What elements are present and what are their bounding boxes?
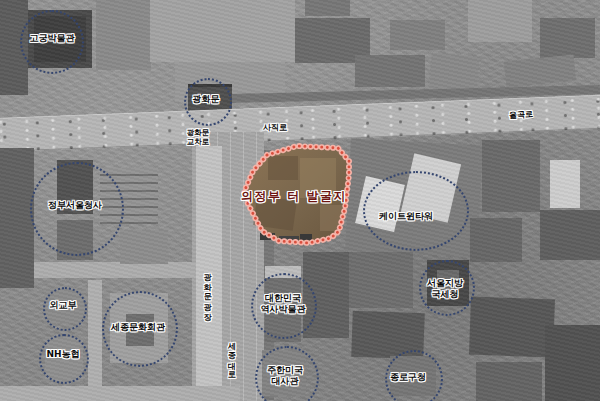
place-label-gwanghwamun: 광화문 <box>193 94 220 105</box>
street-label-line: 광화문 <box>187 128 210 137</box>
street-label-line: 교차로 <box>187 137 210 146</box>
place-label-mofa: 외교부 <box>50 300 77 311</box>
place-label-sejong-center: 세종문화회관 <box>111 322 165 333</box>
place-label-line: 주한미국 <box>267 365 303 376</box>
excavation-trench <box>268 156 298 180</box>
place-label-line: 국세청 <box>427 289 463 300</box>
street-label-sajik-ro: 사직로 <box>263 123 287 133</box>
place-label-line: 대한민국 <box>261 293 306 304</box>
place-label-line: 대사관 <box>267 376 303 387</box>
street-label-gwanghwamun-square: 광화문광장 <box>202 267 212 317</box>
excavation-site-label: 의정부 터 발굴지 <box>241 189 347 203</box>
place-label-government-complex: 정부서울청사 <box>48 200 102 211</box>
place-label-jongno-office: 종로구청 <box>390 372 426 383</box>
place-label-line: 서울지방 <box>427 278 463 289</box>
place-label-history-museum: 대한민국 역사박물관 <box>261 293 306 315</box>
place-label-us-embassy: 주한미국 대사관 <box>267 365 303 387</box>
street-label-yulgok-ro: 율곡로 <box>509 109 534 120</box>
site-structure <box>300 234 312 240</box>
place-label-gogung-museum: 고궁박물관 <box>30 33 75 44</box>
street-label-sejong-daero: 세종대로 <box>226 336 236 376</box>
place-label-k-twin-towers: 케이트윈타워 <box>379 211 433 222</box>
satellite-map: 고궁박물관 광화문 정부서울청사 케이트윈타워 외교부 세종문화회관 NH농협 … <box>0 0 600 401</box>
place-label-nh-bank: NH농협 <box>46 349 79 360</box>
place-label-line: 역사박물관 <box>261 304 306 315</box>
street-label-gwanghwamun-intersection: 광화문 교차로 <box>187 128 210 146</box>
place-label-tax-office: 서울지방 국세청 <box>427 278 463 300</box>
